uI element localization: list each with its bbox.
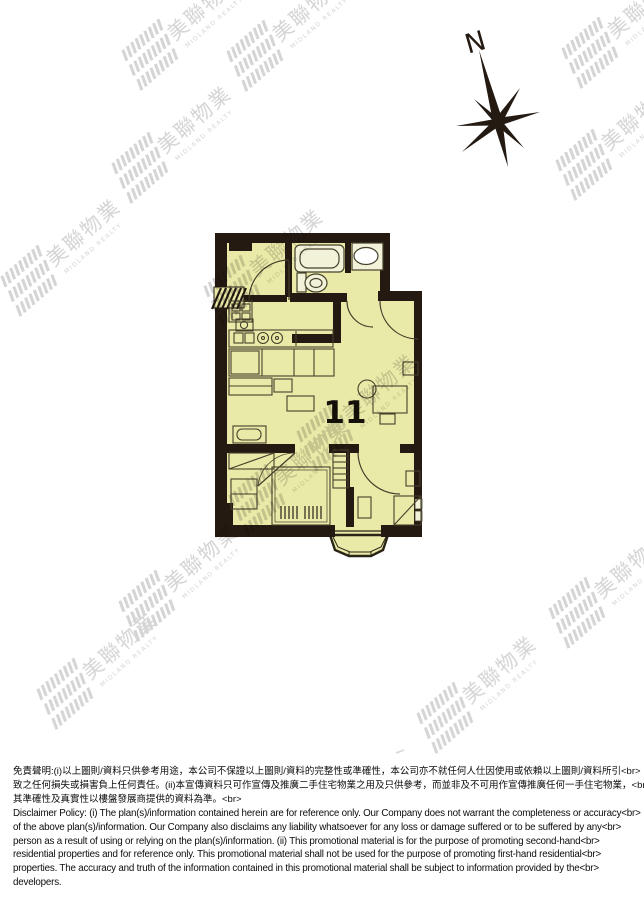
disclaimer-line: of the above plan(s)/information. Our Co… (13, 821, 639, 835)
watermark-unit: 美聯物業MIDLAND REALTY (114, 0, 253, 90)
watermark-unit: 美聯物業MIDLAND REALTY (541, 519, 644, 648)
disclaimer-line: Disclaimer Policy: (i) The plan(s)/infor… (13, 807, 639, 821)
watermark-unit: 美聯物業MIDLAND REALTY (29, 600, 168, 729)
bay-window (330, 531, 388, 556)
watermark-unit: 美聯物業MIDLAND REALTY (104, 74, 243, 203)
disclaimer-line: person as a result of using or relying o… (13, 835, 639, 849)
compass-icon: N (456, 25, 540, 167)
watermark-fragment (396, 750, 404, 753)
watermark-unit: 美聯物業MIDLAND REALTY (219, 0, 358, 91)
disclaimer-line: properties. The accuracy and truth of th… (13, 862, 639, 876)
floor-plan-page: 11 N 美聯物業MIDLAND REALTY美聯物業MIDLAND REALT… (0, 0, 644, 908)
disclaimer-line: 其準確性及真實性以樓盤發展商提供的資料為準。<br> (13, 793, 639, 807)
disclaimer-line: 免責聲明:(i)以上圖則/資料只供參考用途，本公司不保證以上圖則/資料的完整性或… (13, 765, 639, 779)
watermark-cn-text: 美聯物業 (590, 526, 644, 603)
watermark-unit: 美聯物業MIDLAND REALTY (409, 624, 548, 753)
disclaimer-line: residential properties and for reference… (13, 848, 639, 862)
sink-icon (354, 248, 378, 265)
watermark-unit: 美聯物業MIDLAND REALTY (554, 0, 644, 88)
disclaimer-block: 免責聲明:(i)以上圖則/資料只供參考用途，本公司不保證以上圖則/資料的完整性或… (13, 765, 639, 890)
watermark-unit: 美聯物業MIDLAND REALTY (0, 187, 132, 316)
compass-north-label: N (461, 25, 489, 60)
disclaimer-line: developers. (13, 876, 639, 890)
watermark-unit: 美聯物業MIDLAND REALTY (548, 71, 644, 200)
disclaimer-line: 致之任何損失或損害負上任何責任。(ii)本宣傳資料只可作宣傳及推廣二手住宅物業之… (13, 779, 639, 793)
